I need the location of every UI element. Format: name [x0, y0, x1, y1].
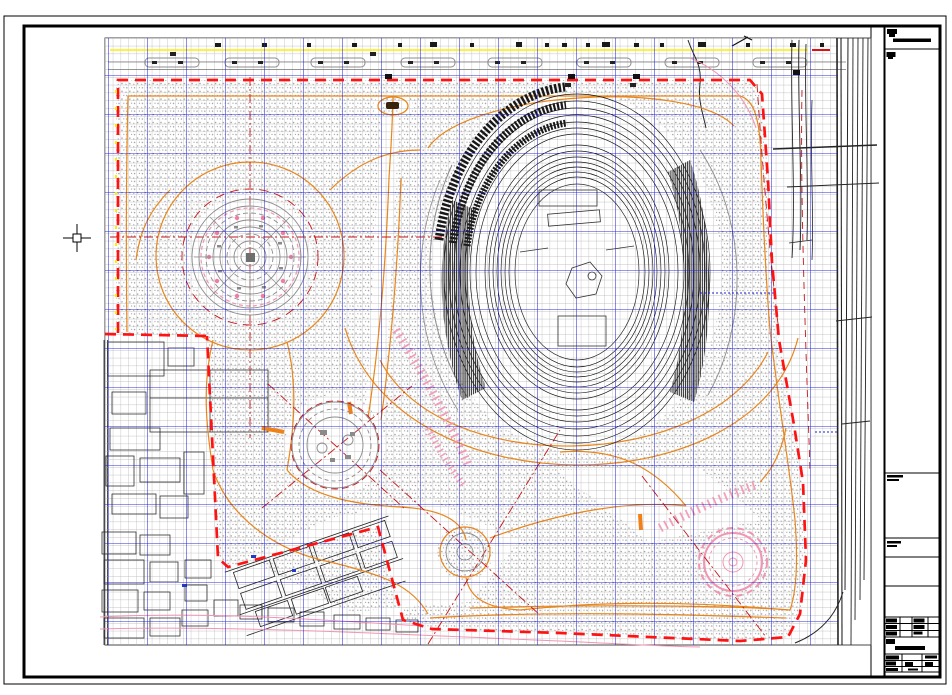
drawing-canvas[interactable] [0, 0, 952, 695]
crosshair-cursor [63, 224, 91, 252]
title-block [885, 27, 940, 677]
cad-sheet [0, 0, 952, 695]
survey-grid-major [105, 38, 838, 645]
